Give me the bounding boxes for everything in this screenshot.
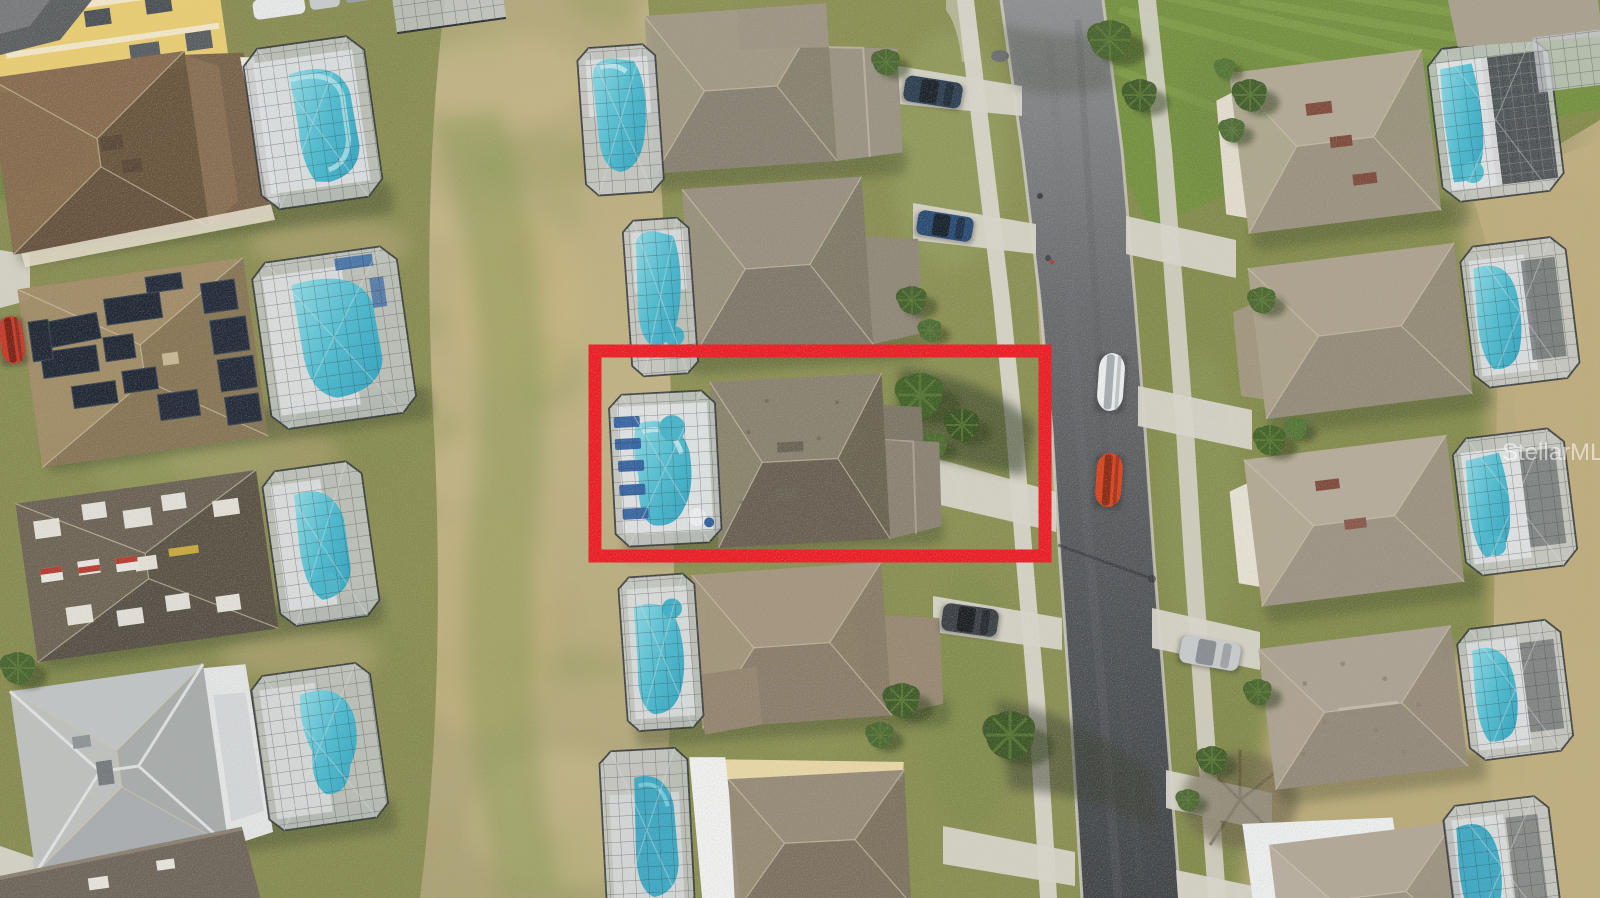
svg-text:StellarMLS: StellarMLS [1502,439,1600,466]
